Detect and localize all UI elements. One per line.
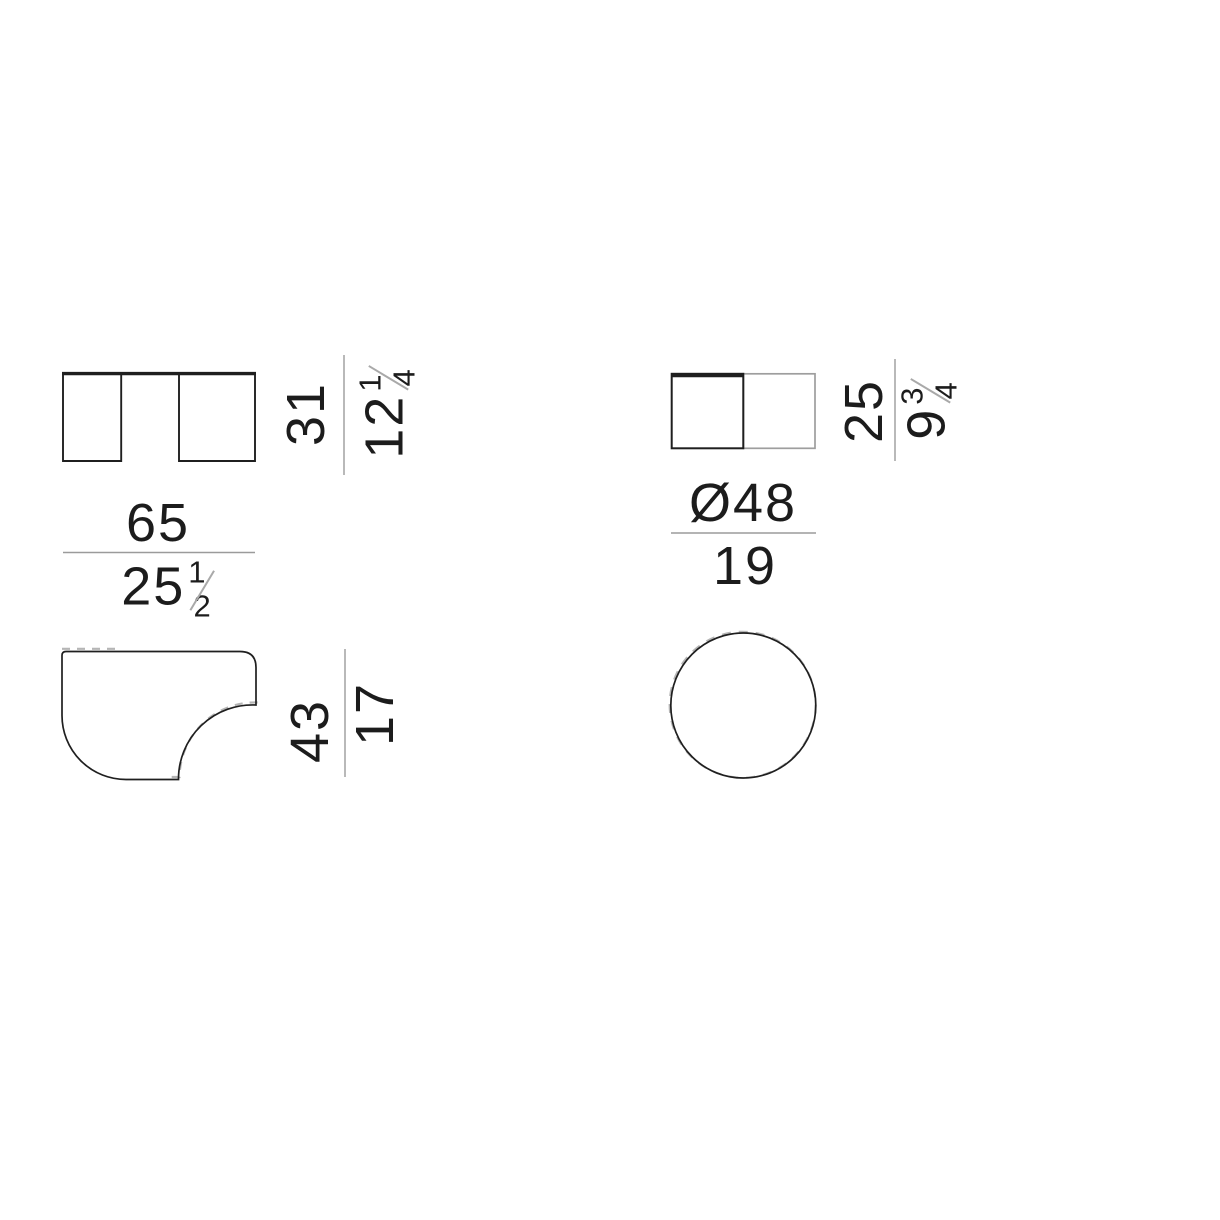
round-table-front-left-half — [672, 374, 744, 449]
inch-fraction-numerator: 3 — [895, 387, 930, 404]
inch-fraction-numerator: 1 — [188, 555, 205, 590]
rect-table-width-inch-label: 2512 — [121, 557, 211, 622]
rect-table-left-leg — [63, 373, 121, 461]
dimension-drawing: 31 1214 65 2512 43 17 25 934 Ø48 19 — [0, 0, 1220, 1220]
round-table-diameter-cm-label: Ø48 — [689, 476, 797, 530]
rect-table-depth-cm-label: 43 — [283, 699, 337, 763]
round-table-top-view — [670, 632, 816, 778]
rect-table-top-view-outline — [62, 652, 256, 780]
round-table-front-view — [672, 374, 815, 449]
inch-whole: 12 — [355, 395, 415, 459]
round-table-front-right-half — [743, 374, 815, 449]
inch-whole: 25 — [121, 557, 185, 617]
rect-table-depth-inch-label: 17 — [348, 682, 402, 746]
inch-fraction-numerator: 1 — [353, 374, 388, 391]
round-table-height-inch-label: 934 — [897, 382, 962, 440]
inch-fraction-denominator: 2 — [194, 589, 211, 624]
rect-table-width-cm-label: 65 — [126, 496, 190, 550]
rect-table-top-view — [62, 649, 258, 780]
inch-whole: 9 — [897, 408, 957, 440]
rect-table-top-view-dashed-outline — [62, 649, 258, 777]
rect-table-height-inch-label: 1214 — [355, 369, 420, 459]
round-table-height-cm-label: 25 — [837, 379, 891, 443]
rect-table-right-leg — [179, 373, 255, 461]
rect-table-front-view — [62, 373, 256, 461]
round-table-top-view-outline — [671, 633, 816, 778]
rect-table-height-cm-label: 31 — [279, 382, 333, 446]
round-table-diameter-inch-label: 19 — [713, 539, 777, 593]
